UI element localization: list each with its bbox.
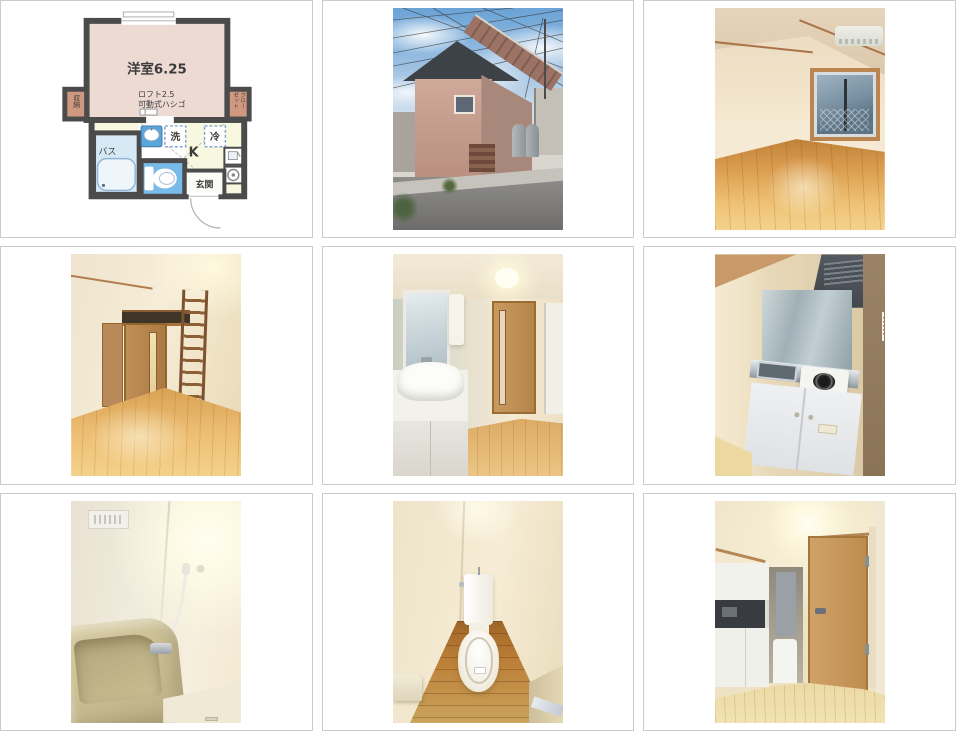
label-closet-left: ゼット (233, 91, 240, 109)
label-entrance: 玄関 (196, 179, 214, 191)
base-cabinet (715, 628, 769, 688)
sanitized-tag (474, 667, 486, 675)
bathtub-drain (102, 184, 105, 187)
bathtub-inner (72, 632, 161, 704)
wood-door (808, 536, 868, 691)
kitchen-unit (715, 563, 769, 687)
cabinet-seam (430, 421, 431, 476)
kitchen-sink (756, 361, 797, 382)
floor-shine (88, 405, 190, 467)
ceiling-light (495, 268, 519, 288)
window-glass (814, 72, 876, 137)
vanity-lamp (449, 294, 464, 345)
stove-burner-center (232, 173, 236, 177)
gallery-cell-room-window[interactable] (643, 0, 956, 238)
side-wall (876, 501, 885, 723)
label-closet-right: クロー (240, 92, 247, 109)
kitchen-edge (544, 303, 563, 414)
window-frame (810, 68, 880, 141)
kitchen-photo (715, 254, 885, 476)
air-conditioner (835, 26, 883, 46)
wood-floor (715, 139, 885, 230)
wood-floor (71, 388, 241, 477)
neighbor-building-left (393, 112, 417, 172)
kitchen-sink-basin (229, 152, 238, 160)
window-sill (124, 12, 175, 17)
facade-window (454, 95, 475, 115)
label-fridge: 冷 (210, 130, 220, 143)
notice-paper (882, 312, 884, 341)
cabinet-knob (795, 411, 800, 416)
side-door (102, 323, 123, 407)
weeds (393, 190, 417, 226)
gallery-cell-hallway[interactable] (643, 493, 956, 731)
toilet-bowl-symbol (153, 169, 177, 189)
gallery-cell-kitchen[interactable] (643, 246, 956, 484)
vanity-basin (397, 362, 464, 400)
cooktop-appliance (722, 607, 737, 617)
western-room-loft-ladder-photo (71, 254, 241, 476)
ac-vent-slats (839, 39, 879, 44)
entrance-door-arc (191, 198, 221, 228)
label-bath: バス (99, 147, 117, 158)
gallery-cell-toilet[interactable] (322, 493, 635, 731)
outlet-plate (817, 424, 837, 435)
door-handle (815, 608, 826, 614)
base-cabinet (743, 382, 861, 475)
photo-grid: 洋室6.25 ロフト2.5 可動式ハシゴ 収納 クロー ゼット バス 洗 K 冷… (0, 0, 956, 731)
notice-text-marks (883, 317, 884, 337)
floorplan-diagram: 洋室6.25 ロフト2.5 可動式ハシゴ 収納 クロー ゼット バス 洗 K 冷… (31, 8, 281, 230)
gallery-cell-room-ladder[interactable] (0, 246, 313, 484)
ceiling-trim (71, 274, 152, 289)
wood-door (492, 301, 537, 414)
floor-drain (205, 717, 218, 721)
flush-lever (459, 582, 464, 587)
entry-corridor (769, 567, 803, 682)
gallery-cell-exterior[interactable] (322, 0, 635, 238)
staircase-lower-steps (469, 144, 495, 173)
toilet-tank-symbol (145, 167, 154, 191)
label-storage: 収納 (72, 94, 80, 109)
balcony-lattice (820, 109, 869, 130)
label-loft-1: ロフト2.5 (138, 90, 174, 99)
washing-machine (773, 639, 797, 683)
door-glass-slit (149, 332, 156, 398)
vanity-cabinet (393, 421, 468, 476)
floorplan-svg: 洋室6.25 ロフト2.5 可動式ハシゴ 収納 クロー ゼット バス 洗 K 冷… (31, 8, 281, 230)
door-glass-slit (499, 310, 506, 406)
splashback-panel (762, 290, 852, 370)
textured-wall (863, 254, 885, 476)
gallery-cell-bathroom[interactable] (0, 493, 313, 731)
floor-shine (766, 156, 843, 220)
washbasin-tap (151, 129, 153, 131)
bathroom-photo (71, 501, 241, 723)
cooktop-area (715, 600, 765, 627)
gas-cylinder (526, 124, 540, 157)
toilet-bowl (458, 630, 499, 692)
label-loft-2: 可動式ハシゴ (138, 99, 186, 109)
toilet-photo (393, 501, 563, 723)
tank-faucet (478, 567, 480, 575)
toilet-paper-holder (393, 674, 422, 701)
toilet-tank (464, 574, 493, 625)
weeds (441, 177, 458, 195)
utility-pole (544, 19, 546, 99)
label-wash: 洗 (171, 130, 181, 143)
label-kitchen: K (189, 146, 200, 161)
western-room-window-photo (715, 8, 885, 230)
ceiling-edge (715, 254, 797, 287)
cabinet-seam (796, 388, 807, 470)
room-opening (146, 116, 174, 124)
label-main-room: 洋室6.25 (127, 61, 187, 78)
washbasin-bowl (144, 129, 159, 141)
gas-cylinder (512, 124, 526, 157)
hallway-kitchen-door-photo (715, 501, 885, 723)
cabinet-knob (808, 414, 813, 419)
stove-burner (812, 372, 836, 391)
toilet-seat (465, 637, 493, 684)
entrance-door (776, 572, 796, 635)
ceiling-light-glow (435, 501, 520, 545)
cabinet-seam (745, 628, 746, 688)
gallery-cell-floorplan[interactable]: 洋室6.25 ロフト2.5 可動式ハシゴ 収納 クロー ゼット バス 洗 K 冷… (0, 0, 313, 238)
door-frame (869, 527, 876, 687)
washbasin-room-photo (393, 254, 563, 476)
vanity-unit (393, 370, 468, 477)
building-exterior-photo (393, 8, 563, 230)
ladder-symbol (140, 109, 157, 115)
bath-faucet (150, 643, 172, 654)
upper-cabinet (715, 563, 769, 602)
gallery-cell-washroom[interactable] (322, 246, 635, 484)
